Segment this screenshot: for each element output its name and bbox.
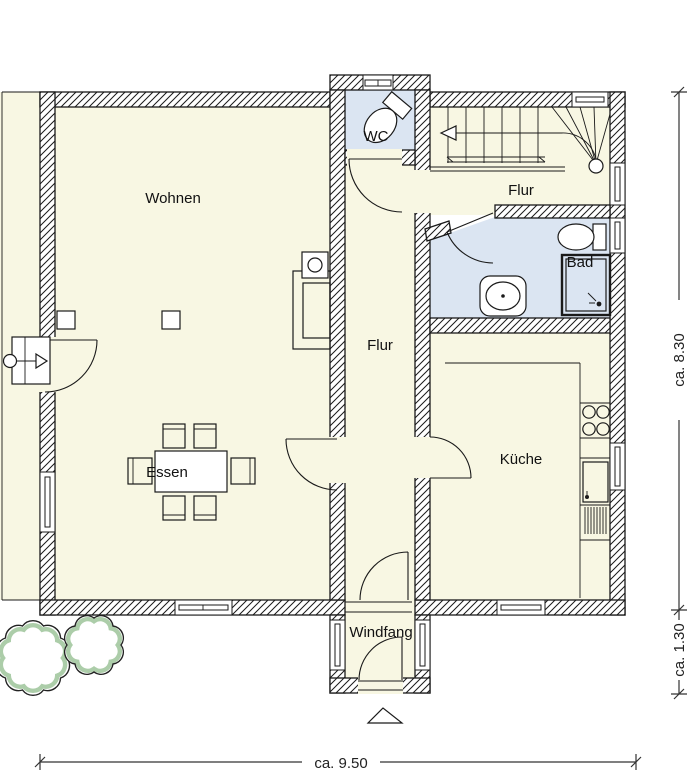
- wall-corridor-left: [330, 90, 345, 600]
- dimension-depth-label: ca. 8.30: [671, 333, 688, 386]
- dimension-bottom: ca. 9.50: [35, 754, 641, 772]
- dimension-right: ca. 8.30 ca. 1.30: [671, 87, 688, 699]
- pillar: [162, 311, 180, 329]
- room-label-wohnen: Wohnen: [145, 190, 201, 207]
- wall-bad-top: [495, 205, 610, 218]
- tree-small: [65, 616, 124, 675]
- room-label-flur-upper: Flur: [508, 182, 534, 199]
- wall-bad-kueche: [430, 318, 610, 333]
- window-stairs-top: [572, 92, 608, 107]
- room-label-bad: Bad: [567, 254, 594, 271]
- sink-icon: [480, 276, 526, 316]
- window-flur-right: [610, 163, 625, 205]
- window-kueche-right: [610, 443, 625, 490]
- tree-large: [0, 621, 69, 696]
- window-essen-bottom: [175, 600, 232, 615]
- window-wc: [363, 75, 393, 90]
- room-label-essen: Essen: [146, 464, 188, 481]
- floor-plan: ca. 8.30 ca. 1.30 ca. 9.50 Wohnen Essen …: [0, 0, 700, 780]
- stair-newel-post: [589, 159, 603, 173]
- corridor-floor: [345, 165, 415, 615]
- trees: [0, 616, 123, 696]
- toilet-icon: [558, 224, 606, 250]
- dimension-width-label: ca. 9.50: [314, 755, 367, 772]
- entrance-arrow-icon: [368, 708, 402, 723]
- window-windfang-right: [415, 620, 430, 670]
- window-left-wall: [40, 472, 55, 532]
- wohnen-floor: [55, 107, 330, 600]
- pillar: [57, 311, 75, 329]
- wall-corridor-right: [415, 90, 430, 600]
- window-kueche-bottom: [497, 600, 545, 615]
- room-label-kueche: Küche: [500, 451, 543, 468]
- window-windfang-left: [330, 620, 345, 670]
- window-bad-right: [610, 218, 625, 253]
- room-label-windfang: Windfang: [349, 624, 412, 641]
- wall-top-left: [40, 92, 330, 107]
- room-label-wc: WC: [364, 128, 389, 145]
- room-label-flur-corridor: Flur: [367, 337, 393, 354]
- dimension-entry-label: ca. 1.30: [671, 623, 688, 676]
